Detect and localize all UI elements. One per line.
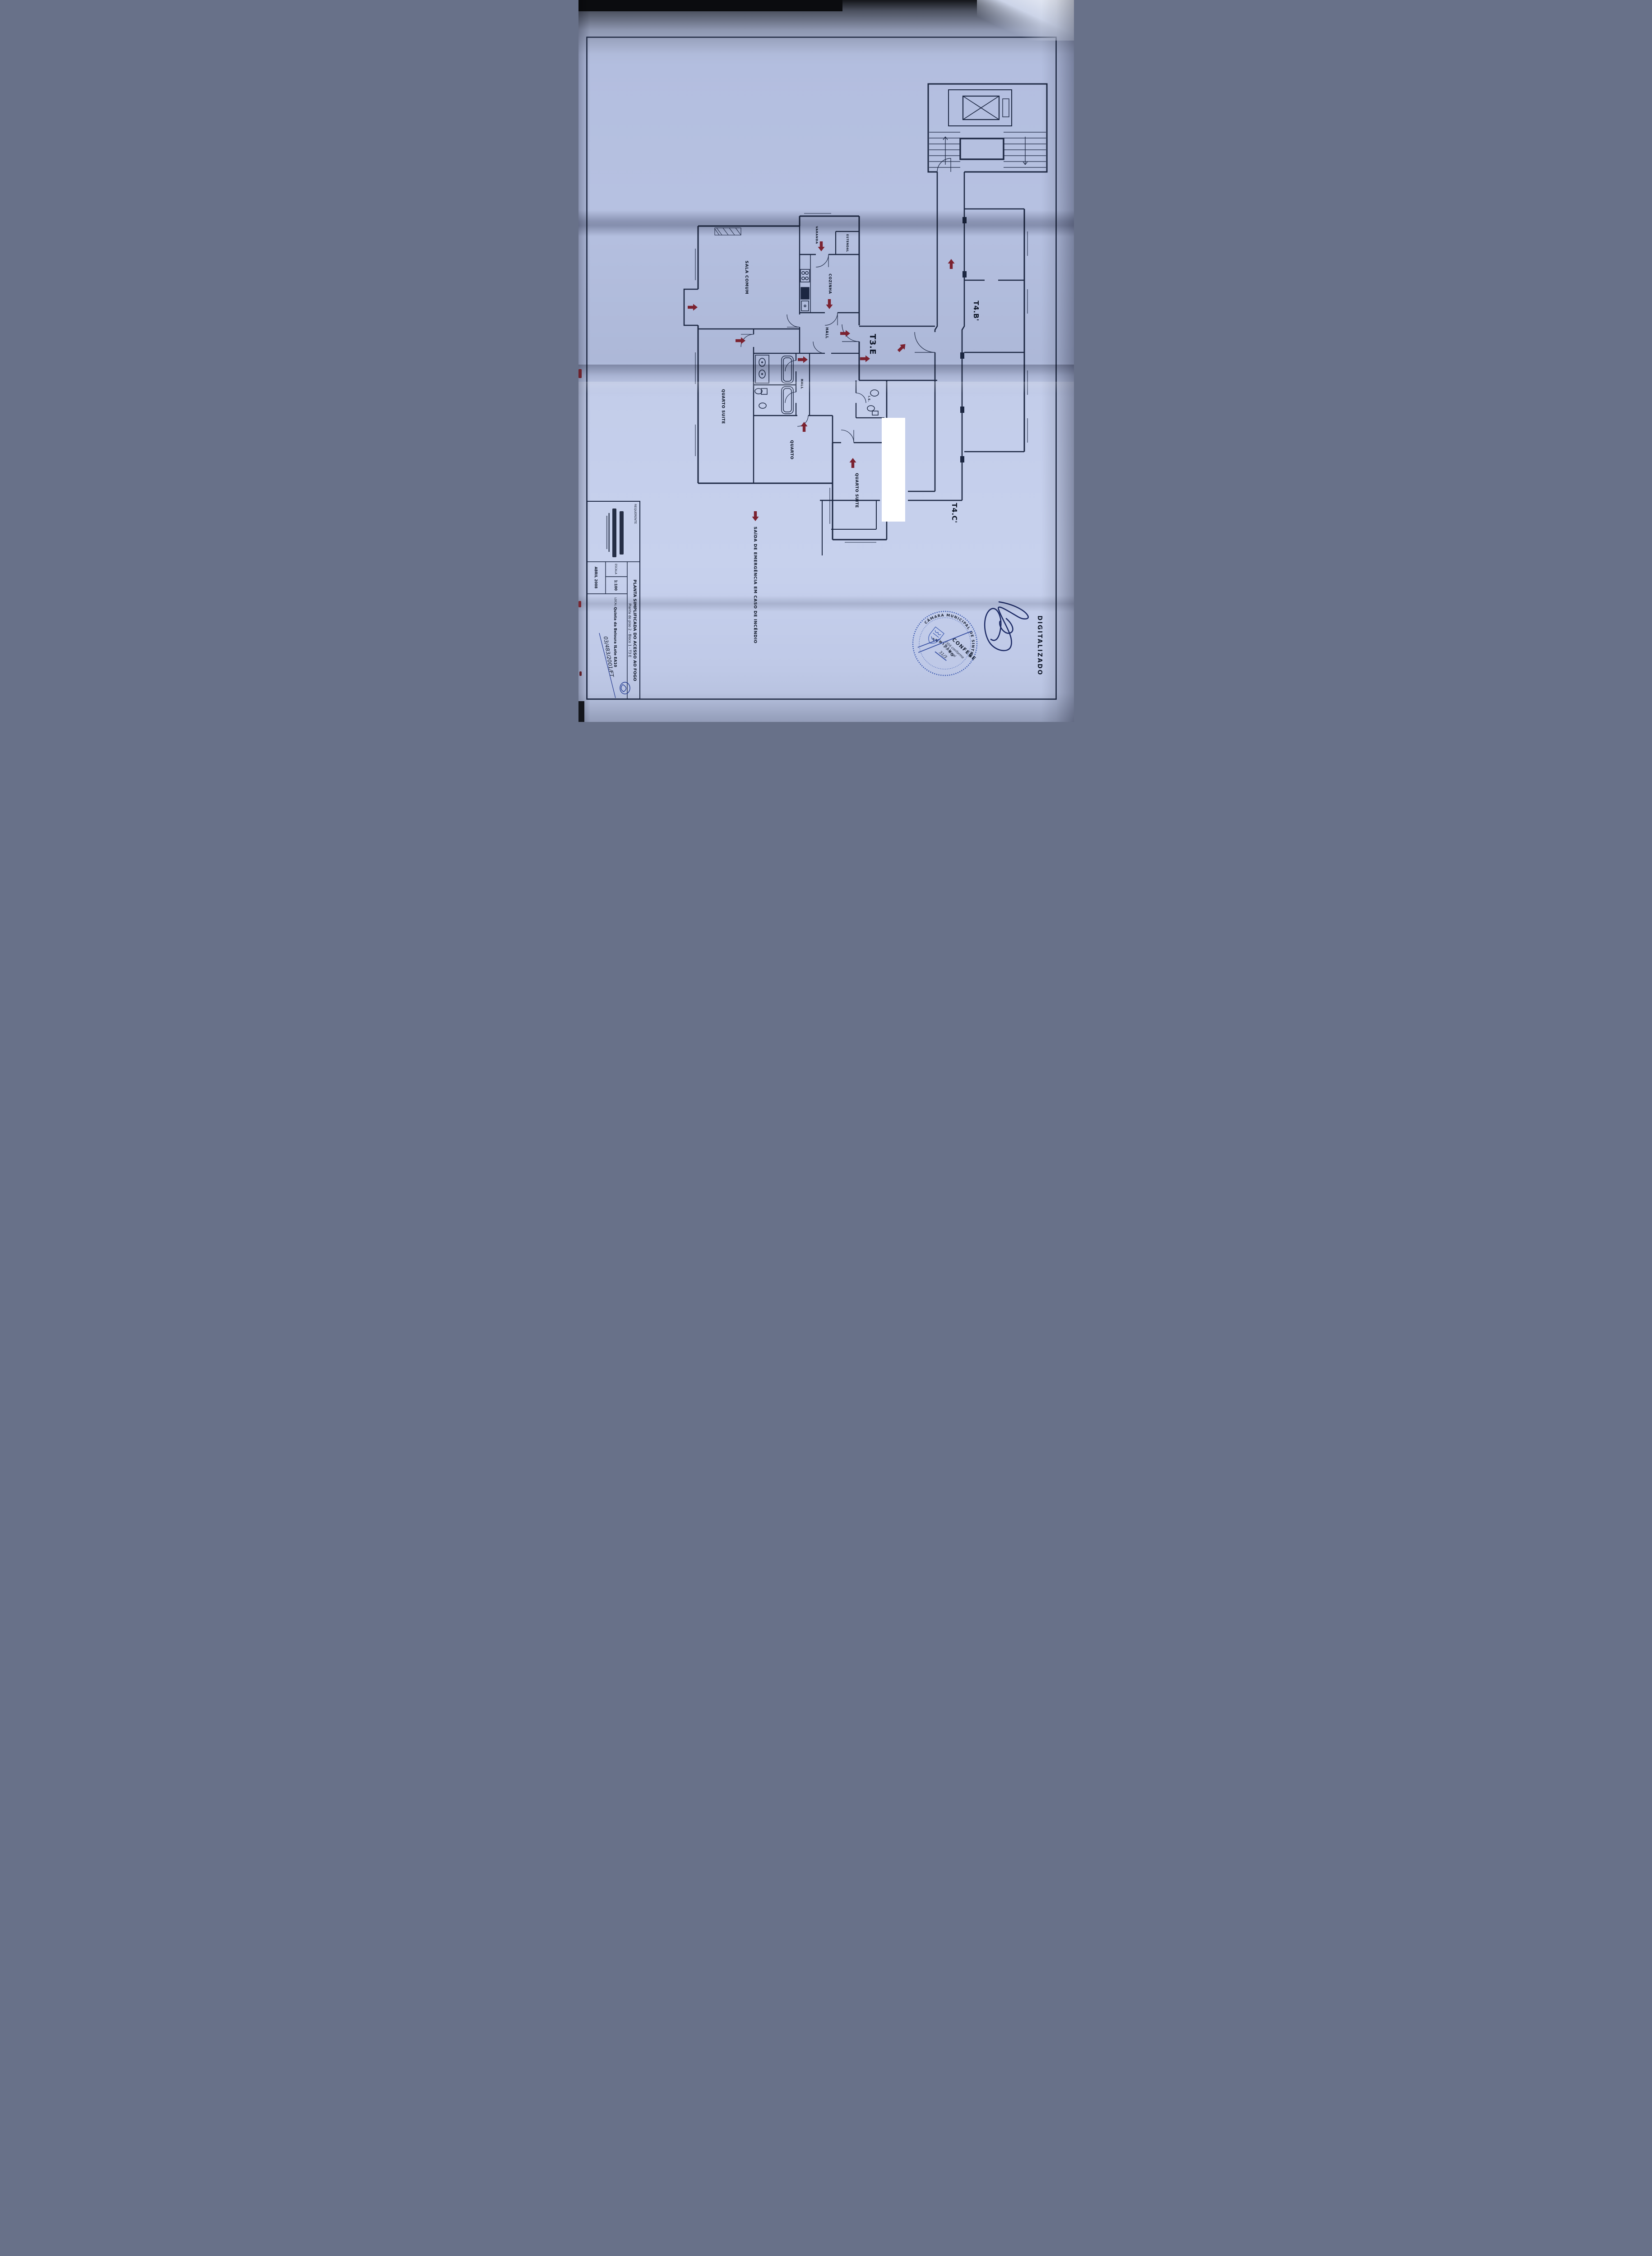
washbasin: [759, 358, 765, 366]
kitchen-sink-dark: [801, 287, 809, 299]
stair-treads: [929, 132, 1046, 167]
vanity-counter: [755, 355, 769, 383]
label-apartment-t4b: T4.B': [972, 300, 980, 321]
scanned-floorplan-page: SALA COMUM COZINHA HALL VARANDA ESTENDAL…: [578, 0, 1074, 722]
sala-window-hatch: [715, 228, 741, 235]
label-estendal: ESTENDAL: [846, 234, 849, 252]
escape-arrow: [736, 337, 745, 344]
label-sala-comum: SALA COMUM: [744, 261, 749, 295]
scale-label: ESCALA: [614, 564, 617, 574]
municipal-stamp: CÂMARA MUNICIPAL DE SINTRA ORIGINAL CONF…: [900, 598, 991, 689]
toilet-tank: [872, 411, 878, 415]
drawing-subtitle: Planta do piso 2 - Bloco 1 - T3 E: [628, 603, 632, 657]
washbasin: [870, 390, 879, 396]
escape-arrow: [818, 241, 824, 251]
corridor-door-arc: [915, 332, 935, 352]
scale-value: 1:100: [614, 580, 618, 591]
stair-landing-wall: [960, 139, 1004, 159]
label-wc: I.S.: [867, 396, 870, 402]
escape-route-arrows: [688, 241, 955, 521]
label-varanda: VARANDA: [815, 226, 819, 244]
emergency-exit-note: SAÍDA DE EMERGÊNCIA EM CASO DE INCÊNDIO: [753, 527, 758, 643]
label-hall-entry: HALL: [825, 327, 829, 338]
date-value: ABRIL 2008: [594, 567, 598, 588]
door-arcs: [741, 254, 866, 443]
label-hall-bedrooms: HALL: [800, 379, 804, 389]
escape-arrow: [840, 330, 850, 337]
elevator-x-icon: [963, 96, 999, 120]
red-edge-mark: [578, 601, 581, 607]
bidet-icon: [759, 403, 766, 408]
toilet-icon: [755, 388, 762, 394]
local-label: LOCAL: [614, 597, 617, 606]
digitized-watermark: DIGITALIZADO: [1036, 615, 1043, 676]
escape-arrow: [688, 304, 698, 311]
requerente-label: REQUERENTE: [634, 504, 637, 524]
label-quarto: QUARTO: [789, 440, 794, 459]
local-value: Quinta da Beloura II: [613, 607, 617, 647]
escape-arrow: [849, 458, 856, 468]
photo-black-corner: [578, 701, 584, 722]
drawing-frame-border: [587, 37, 1056, 699]
drawing-sheet: SALA COMUM COZINHA HALL VARANDA ESTENDAL…: [586, 37, 1057, 700]
label-apartment-t4c: T4.C': [950, 503, 958, 523]
washbasin: [759, 370, 765, 378]
escape-arrow: [801, 422, 807, 432]
label-quarto-suite-1: QUARTO SUITE: [721, 389, 725, 424]
circled-initial-scribble: [620, 682, 630, 694]
window-marks: [695, 213, 876, 542]
label-apartment-t3e: T3.E: [868, 334, 877, 355]
corridor-columns: [960, 217, 967, 462]
handwritten-signature: [985, 602, 1028, 651]
paper-highlight-corner: [977, 0, 1074, 41]
escape-arrow: [896, 342, 907, 353]
label-quarto-suite-2: QUARTO SUITE: [854, 473, 859, 508]
escape-arrow: [798, 356, 808, 363]
lot-value: Lote EA10: [613, 647, 617, 667]
floorplan-sheet-rotated: SALA COMUM COZINHA HALL VARANDA ESTENDAL…: [586, 37, 1057, 700]
escape-arrow: [826, 299, 833, 309]
requerente-logo: [606, 509, 623, 557]
label-cozinha: COZINHA: [828, 273, 832, 294]
stairwell-core: [928, 84, 1047, 172]
room-labels: SALA COMUM COZINHA HALL VARANDA ESTENDAL…: [721, 226, 980, 643]
stair-door-arc: [937, 158, 951, 172]
escape-arrow: [860, 356, 870, 362]
toilet-icon: [867, 406, 875, 411]
whiteout-patch: [882, 418, 905, 522]
red-edge-mark: [579, 671, 582, 676]
kitchen-fixtures: [801, 254, 810, 313]
elevator-room: [949, 90, 1012, 126]
drawing-title: PLANTA SIMPLIFICADA DO ACESSO AO FOGO: [632, 579, 637, 681]
red-edge-mark: [578, 369, 582, 378]
photo-black-edge: [578, 0, 842, 11]
escape-arrow: [752, 511, 759, 521]
escape-arrow: [948, 259, 954, 269]
t4b-partial-walls: [964, 209, 1027, 452]
